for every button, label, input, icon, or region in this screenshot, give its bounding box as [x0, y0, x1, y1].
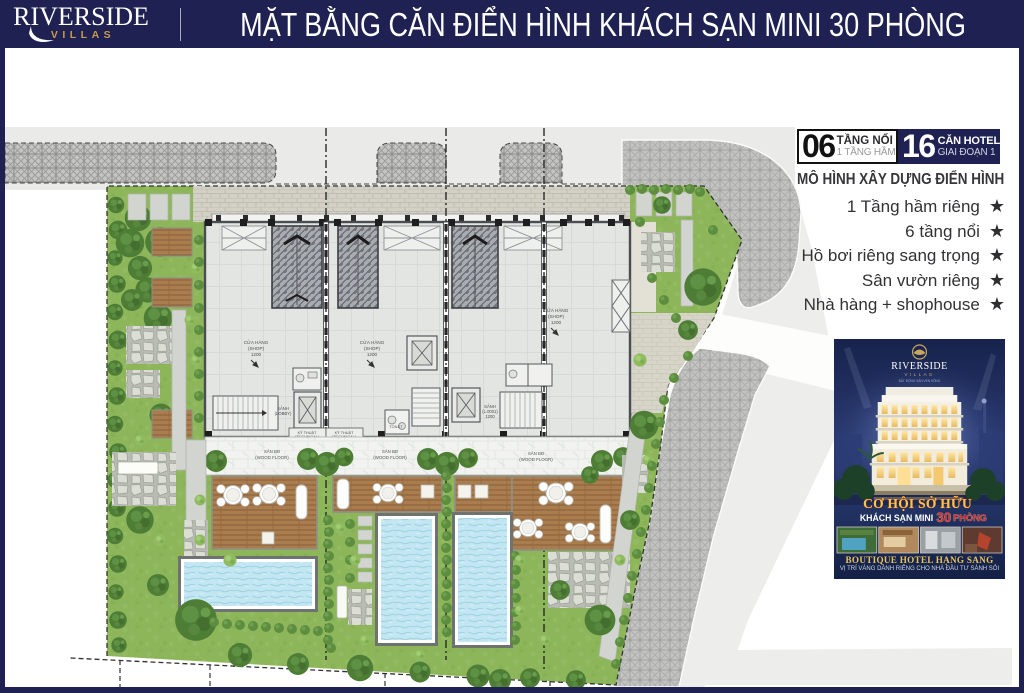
svg-text:CỬA HÀNG: CỬA HÀNG: [244, 339, 269, 345]
svg-text:SÂN BĐ: SÂN BĐ: [382, 449, 398, 454]
svg-text:SÂN BĐ: SÂN BĐ: [264, 449, 280, 454]
svg-text:TOILET: TOILET: [389, 425, 403, 429]
svg-text:1200: 1200: [251, 352, 262, 357]
svg-text:30: 30: [936, 510, 951, 525]
svg-text:SÂN BĐ: SÂN BĐ: [528, 451, 544, 456]
svg-text:CỬA HÀNG: CỬA HÀNG: [360, 339, 385, 345]
svg-text:VILLAS: VILLAS: [904, 372, 934, 377]
svg-text:(WOOD FLOOR): (WOOD FLOOR): [373, 455, 407, 460]
svg-text:BẤT ĐỘNG SẢN VEN SÔNG: BẤT ĐỘNG SẢN VEN SÔNG: [899, 378, 941, 383]
svg-text:(SHOP): (SHOP): [364, 346, 381, 351]
svg-text:(WOOD FLOOR): (WOOD FLOOR): [255, 455, 289, 460]
svg-text:(SHOP): (SHOP): [548, 314, 565, 319]
svg-text:BOUTIQUE HOTEL HẠNG SANG: BOUTIQUE HOTEL HẠNG SANG: [846, 555, 994, 565]
svg-text:1200: 1200: [551, 320, 562, 325]
svg-text:RIVERSIDE: RIVERSIDE: [891, 361, 947, 372]
svg-text:PHÒNG: PHÒNG: [953, 512, 986, 523]
svg-text:(SHOP): (SHOP): [248, 346, 265, 351]
svg-text:CƠ HỘI SỞ HỮU: CƠ HỘI SỞ HỮU: [863, 496, 972, 511]
svg-text:CỬA HÀNG: CỬA HÀNG: [544, 307, 569, 313]
svg-text:(WOOD FLOOR): (WOOD FLOOR): [519, 457, 553, 462]
svg-text:KHÁCH SẠN MINI: KHÁCH SẠN MINI: [860, 513, 933, 523]
svg-text:(LOBBY): (LOBBY): [275, 411, 292, 416]
svg-text:1200: 1200: [367, 352, 378, 357]
svg-text:1200: 1200: [485, 414, 495, 419]
